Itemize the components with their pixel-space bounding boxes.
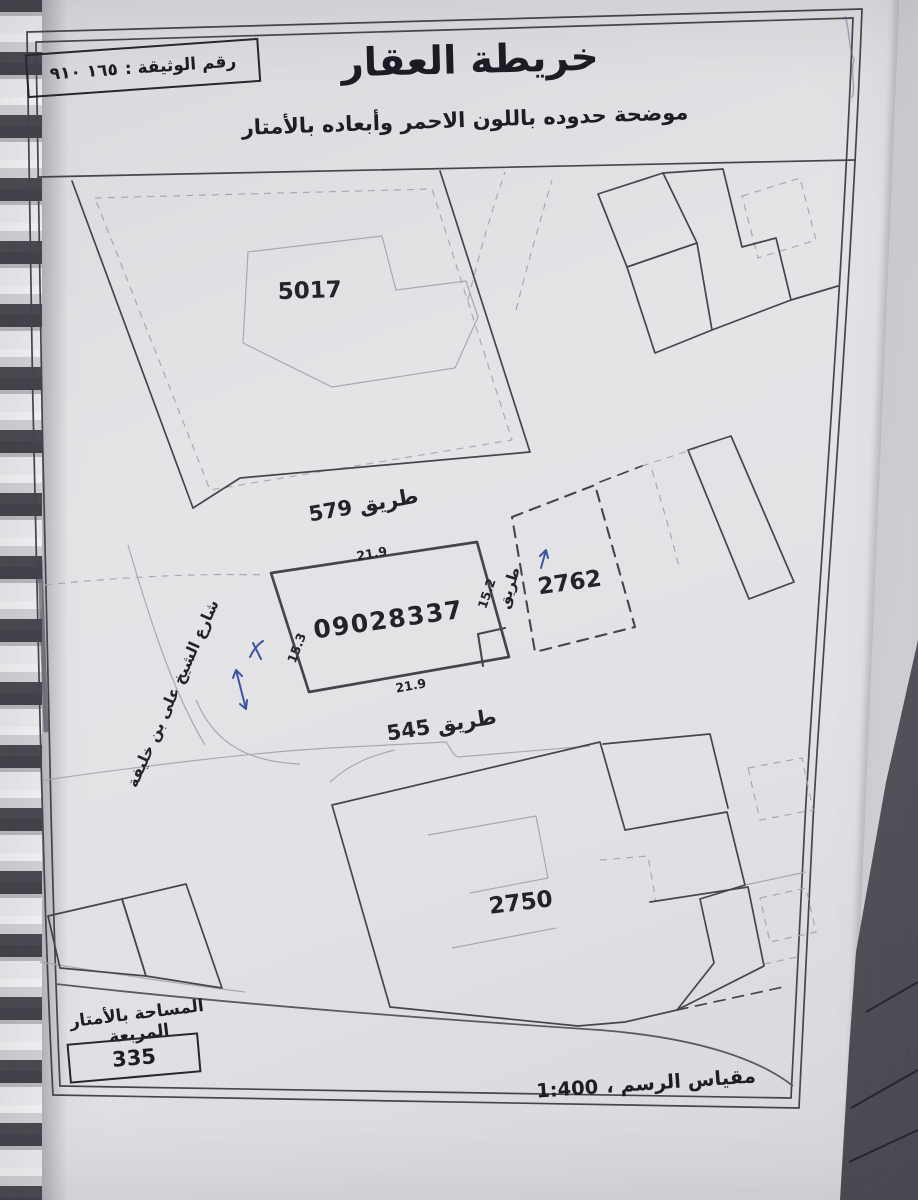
subject-plot-number: 09028337 (312, 595, 466, 645)
road-545-label: طريق 545 (385, 705, 498, 746)
faint-parcel-lines (40, 172, 816, 992)
street-name-label: شارع الشيخ على بن خليفة (124, 597, 223, 790)
desk-seam-lines (849, 982, 918, 1162)
scale-value: 1:400 (535, 1075, 599, 1102)
plot-5017-label: 5017 (277, 277, 342, 305)
dimension-top: 21.9 (355, 543, 388, 563)
document-number-label: رقم الوثيقة : (124, 52, 237, 80)
area-value: 335 (111, 1044, 157, 1072)
side-road-label: طريق (494, 565, 524, 611)
double-arrow-pen-mark (233, 670, 247, 709)
plot-2762-label: 2762 (536, 566, 603, 601)
dimension-left: 15.3 (284, 631, 309, 665)
road-579-label: طريق 579 (307, 484, 420, 527)
dimension-bottom: 21.9 (394, 675, 427, 695)
document-number-value: ١٦٥ ٩١٠ (49, 60, 118, 85)
pen-symbol-mark (250, 641, 263, 659)
property-map-document-photo: 5017 2762 2750 09028337 طريق 579 طريق 54… (0, 0, 918, 1200)
arrow-pen-mark-2762 (540, 550, 548, 568)
map-labels: 5017 2762 2750 09028337 طريق 579 طريق 54… (124, 277, 604, 920)
page-frame (27, 9, 862, 1108)
plot-2750-label: 2750 (487, 886, 554, 920)
road-dashed-edge (600, 466, 642, 482)
